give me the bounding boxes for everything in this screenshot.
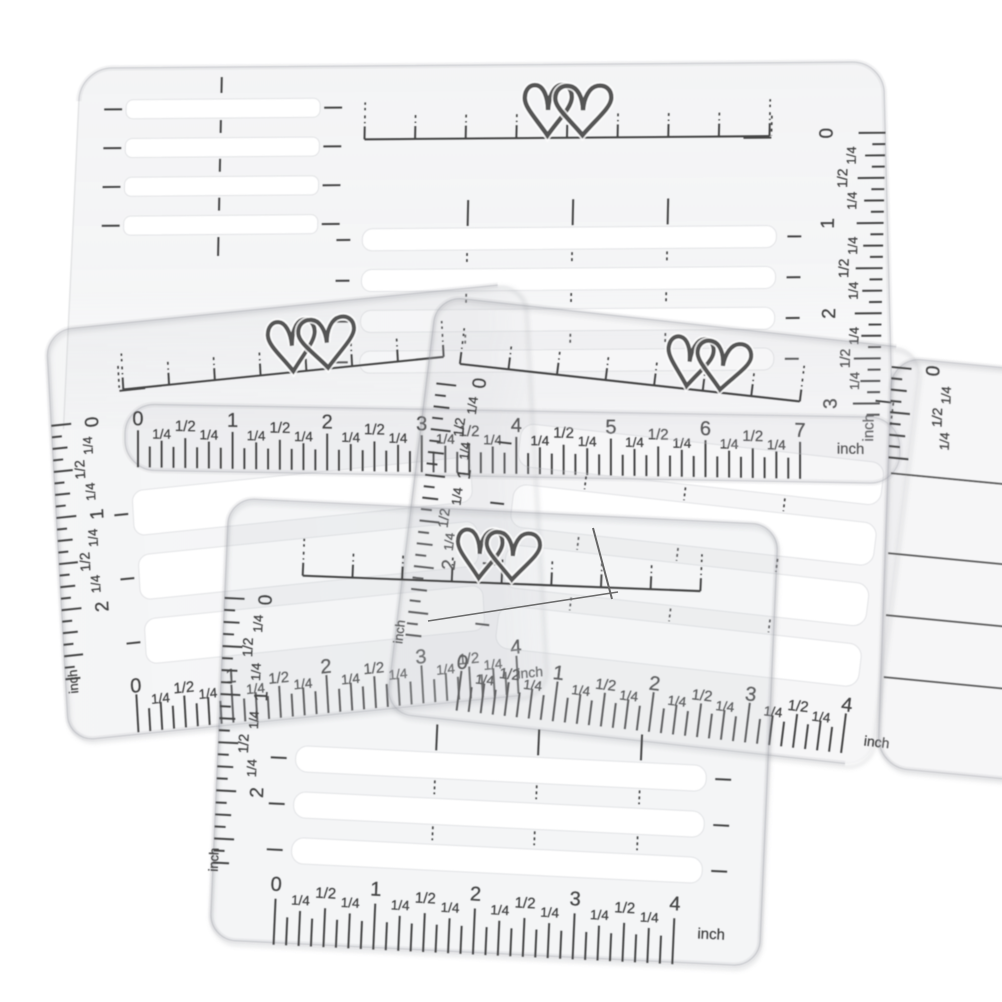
svg-text:1/2: 1/2 [614, 899, 636, 917]
svg-text:1/2: 1/2 [450, 416, 468, 437]
svg-text:2: 2 [819, 308, 840, 319]
svg-text:1/4: 1/4 [248, 662, 264, 681]
svg-text:1/2: 1/2 [239, 637, 256, 657]
svg-text:1: 1 [251, 690, 272, 702]
svg-text:1/4: 1/4 [83, 482, 99, 502]
svg-text:1/4: 1/4 [389, 431, 408, 446]
svg-text:1/4: 1/4 [80, 436, 96, 456]
svg-text:1/4: 1/4 [846, 282, 861, 300]
svg-text:1/4: 1/4 [152, 426, 171, 441]
svg-text:1/2: 1/2 [269, 420, 290, 437]
svg-text:inch: inch [697, 925, 725, 943]
svg-text:inch: inch [65, 669, 81, 694]
svg-text:1/4: 1/4 [200, 427, 219, 442]
svg-text:0: 0 [132, 408, 143, 430]
svg-text:1/4: 1/4 [845, 237, 860, 255]
svg-text:1/4: 1/4 [246, 711, 262, 730]
svg-text:1/2: 1/2 [787, 697, 810, 716]
svg-text:1/4: 1/4 [464, 396, 481, 416]
svg-text:1/2: 1/2 [235, 733, 252, 753]
svg-text:1: 1 [87, 508, 108, 521]
svg-text:1/4: 1/4 [456, 441, 473, 461]
svg-text:1/2: 1/2 [929, 407, 946, 428]
svg-text:1/4: 1/4 [938, 386, 954, 406]
svg-text:1/4: 1/4 [844, 146, 859, 164]
svg-text:1/2: 1/2 [71, 459, 88, 480]
svg-text:3: 3 [569, 888, 581, 911]
svg-text:1/4: 1/4 [294, 429, 313, 444]
svg-text:1/4: 1/4 [531, 433, 550, 448]
svg-text:0: 0 [923, 365, 944, 378]
svg-text:1/4: 1/4 [448, 487, 465, 507]
svg-text:1/4: 1/4 [440, 900, 460, 916]
svg-text:1/4: 1/4 [85, 528, 101, 548]
svg-text:1/2: 1/2 [76, 551, 93, 572]
svg-text:0: 0 [270, 873, 282, 896]
svg-text:1/4: 1/4 [640, 910, 660, 926]
svg-text:1/4: 1/4 [937, 432, 953, 452]
svg-text:1: 1 [818, 218, 839, 229]
svg-text:4: 4 [669, 893, 681, 916]
svg-text:1/4: 1/4 [291, 892, 311, 908]
svg-text:1/2: 1/2 [315, 885, 337, 903]
svg-text:2: 2 [470, 883, 482, 906]
svg-text:1/4: 1/4 [578, 434, 597, 449]
svg-text:1/2: 1/2 [514, 894, 536, 912]
svg-text:1: 1 [227, 410, 238, 432]
svg-text:2: 2 [322, 411, 333, 433]
svg-text:inch: inch [206, 847, 222, 872]
svg-text:1/4: 1/4 [247, 428, 266, 443]
svg-text:2: 2 [92, 600, 113, 613]
svg-text:1/4: 1/4 [490, 902, 510, 918]
svg-text:1: 1 [370, 878, 382, 901]
svg-text:2: 2 [247, 787, 268, 799]
svg-text:1/4: 1/4 [625, 435, 644, 450]
svg-text:1/2: 1/2 [415, 890, 437, 908]
svg-text:0: 0 [255, 594, 276, 606]
svg-text:1/2: 1/2 [834, 168, 850, 188]
svg-text:1/4: 1/4 [540, 905, 560, 921]
svg-text:1/4: 1/4 [341, 430, 360, 445]
svg-text:1/2: 1/2 [364, 421, 385, 438]
svg-text:0: 0 [82, 416, 103, 429]
svg-text:1/4: 1/4 [844, 192, 859, 210]
svg-text:1/4: 1/4 [341, 895, 361, 911]
svg-text:1/4: 1/4 [250, 614, 266, 633]
svg-text:1/4: 1/4 [244, 759, 260, 778]
svg-text:1/4: 1/4 [88, 574, 104, 594]
svg-text:1/4: 1/4 [391, 897, 411, 913]
svg-text:1/2: 1/2 [175, 418, 196, 435]
svg-text:1/2: 1/2 [835, 258, 851, 278]
svg-text:0: 0 [816, 128, 837, 139]
svg-text:1/4: 1/4 [590, 907, 610, 923]
svg-text:1/2: 1/2 [173, 678, 195, 697]
